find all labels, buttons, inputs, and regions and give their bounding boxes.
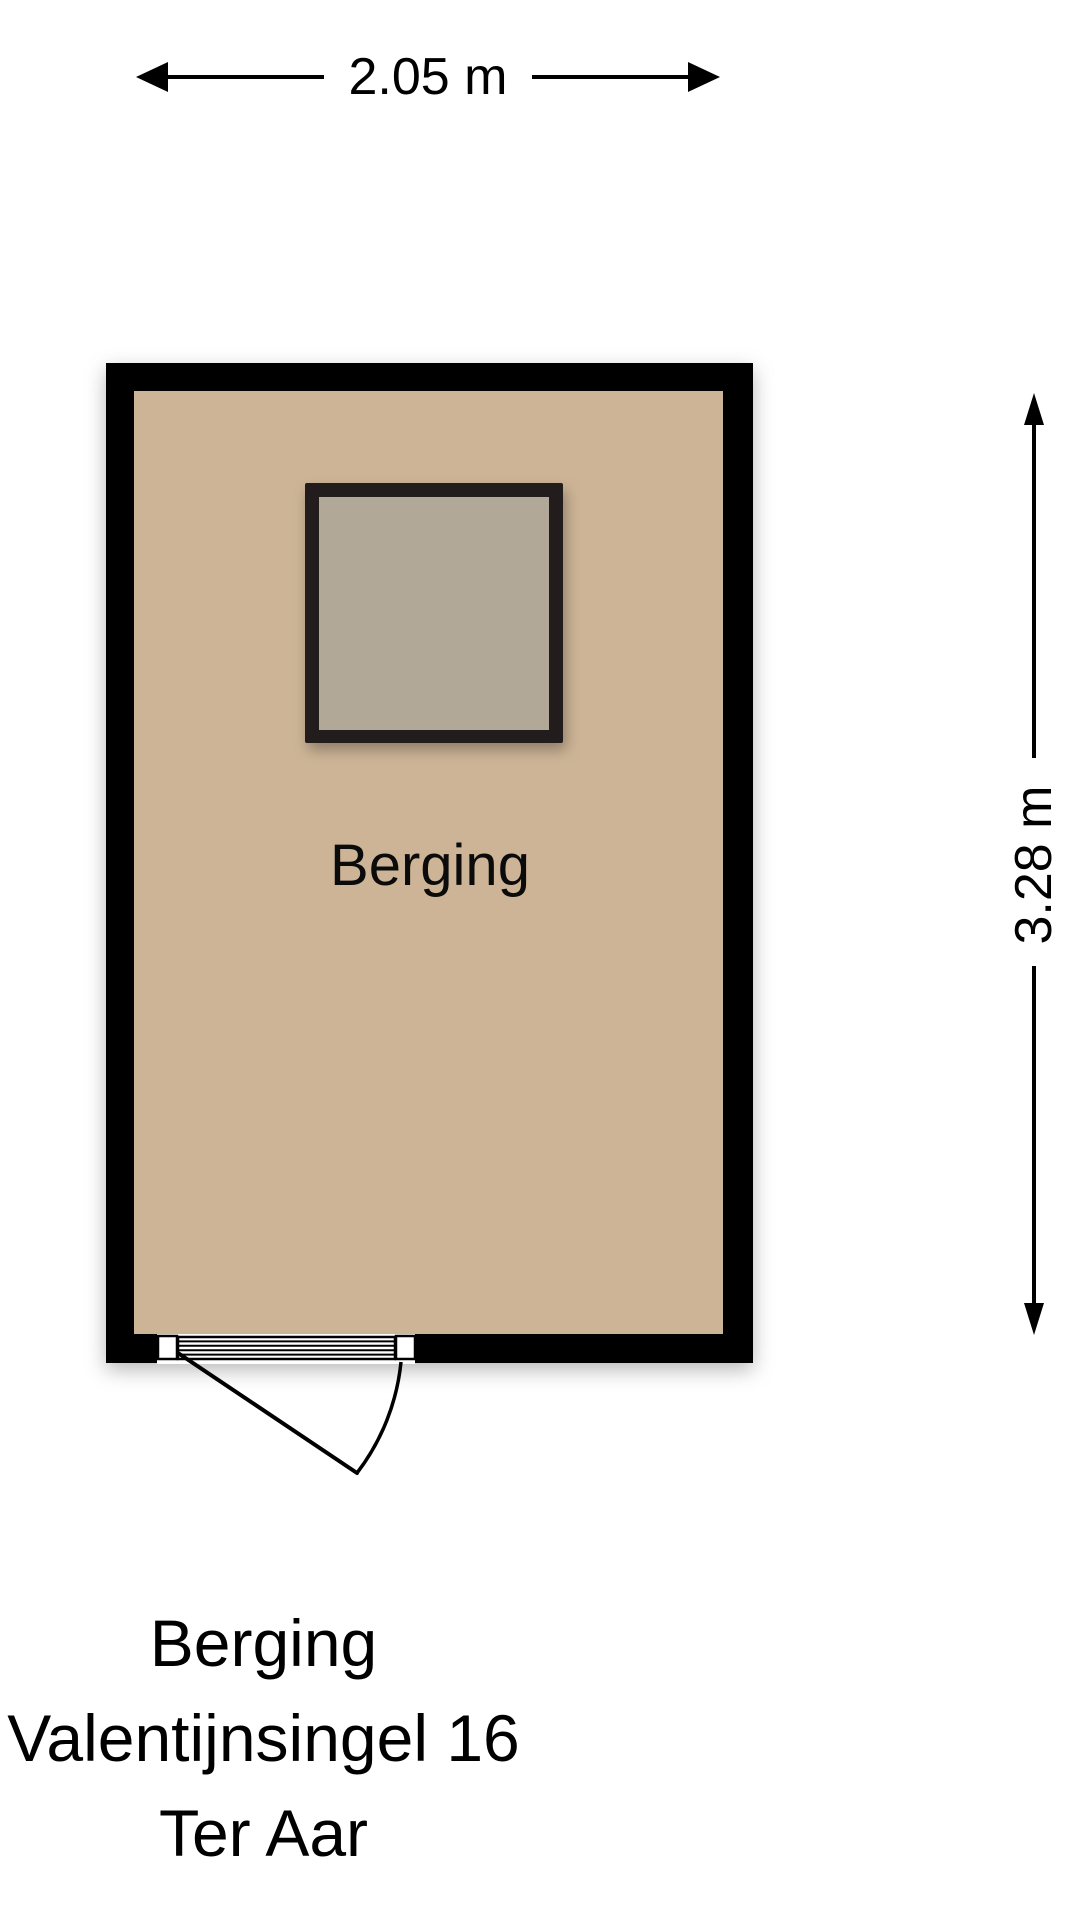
door-swing-arc — [357, 1362, 401, 1473]
width-dimension: 2.05 m — [136, 48, 720, 106]
title-address: Valentijnsingel 16 — [0, 1691, 527, 1786]
door-post-right — [396, 1336, 415, 1359]
skylight-glass — [319, 497, 549, 730]
room-berging: Berging — [106, 363, 753, 1363]
door-leaf — [178, 1353, 357, 1473]
height-dimension: 3.28 m — [1005, 393, 1063, 1335]
title-room-name: Berging — [0, 1596, 527, 1691]
door-post-left — [158, 1336, 177, 1359]
height-dimension-label: 3.28 m — [1005, 786, 1063, 945]
room-label: Berging — [330, 833, 530, 898]
width-dimension-arrow-left — [136, 62, 168, 92]
floorplan-page: 2.05 m 3.28 m Berging — [0, 0, 1080, 1920]
height-dimension-arrow-bottom — [1024, 1303, 1044, 1335]
height-dimension-arrow-top — [1024, 393, 1044, 425]
width-dimension-arrow-right — [688, 62, 720, 92]
door — [157, 1334, 415, 1473]
door-slab — [178, 1337, 395, 1359]
width-dimension-label: 2.05 m — [349, 48, 508, 106]
title-block: Berging Valentijnsingel 16 Ter Aar — [0, 1596, 527, 1881]
title-city: Ter Aar — [0, 1786, 527, 1881]
